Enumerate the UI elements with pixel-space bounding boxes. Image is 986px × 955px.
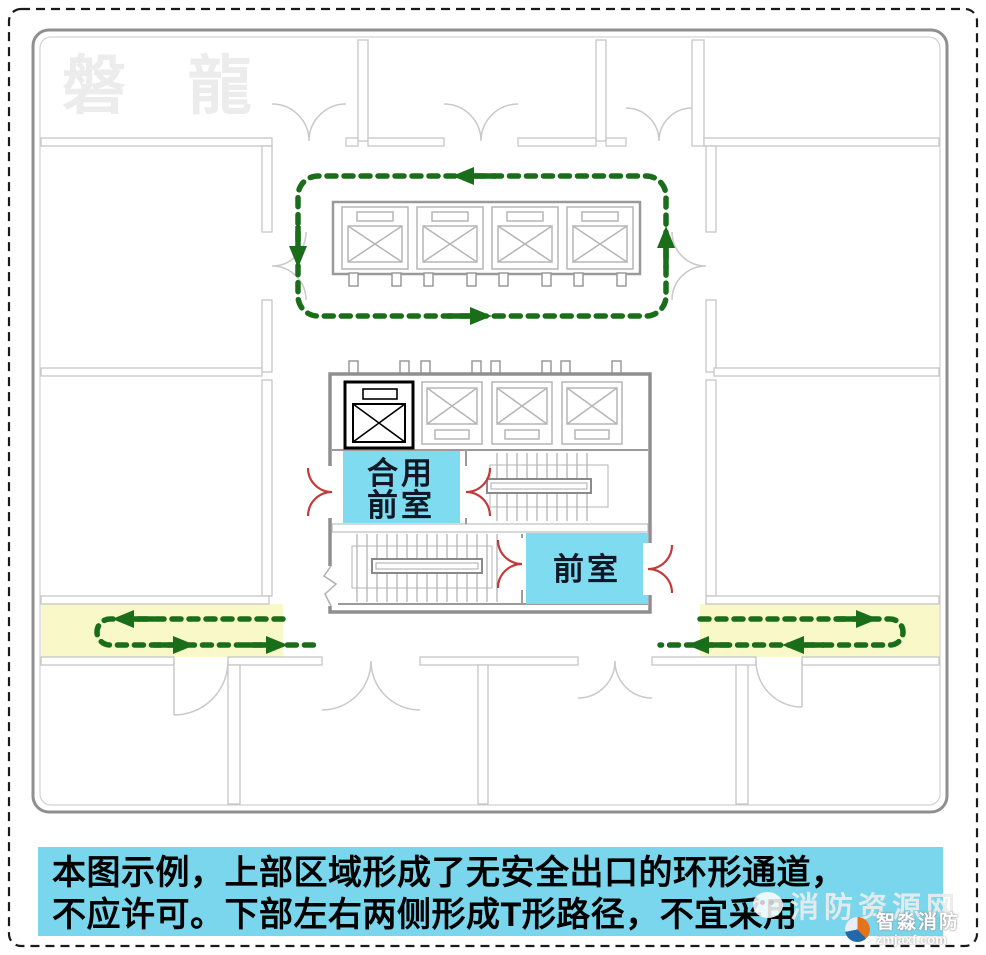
brand-logo-icon xyxy=(845,917,870,942)
brand-watermark: 智淼消防 zmjaxf.com xyxy=(845,913,960,947)
brand-watermark-name: 智淼消防 xyxy=(876,913,960,933)
elevator-shaft-icon xyxy=(492,207,558,269)
wechat-icon xyxy=(753,892,783,918)
screenshot-root: 磐 龍 xyxy=(0,0,986,955)
elevator-shaft-icon xyxy=(562,382,622,444)
shared-lobby-label-line2: 前室 xyxy=(367,488,435,523)
firefighter-elevator-shaft xyxy=(345,382,413,448)
upper-elevator-bank xyxy=(333,202,640,286)
shared-lobby-label-line1: 合用 xyxy=(367,456,435,491)
corner-brand-watermark: 磐 龍 xyxy=(62,50,274,122)
service-core: 合用 前室 前室 xyxy=(308,361,672,612)
lower-stair xyxy=(352,534,522,604)
elevator-shaft-icon xyxy=(417,207,483,269)
elevator-shaft-icon xyxy=(342,207,408,269)
elevator-shaft-icon xyxy=(492,382,552,444)
brand-watermark-url: zmjaxf.com xyxy=(876,933,960,947)
elevator-shaft-icon xyxy=(422,382,482,444)
lobby-label: 前室 xyxy=(553,552,621,587)
core-mid-wall xyxy=(332,524,648,532)
left-corridor-highlight xyxy=(41,604,283,657)
elevator-shaft-icon xyxy=(567,207,633,269)
floor-plan-canvas: 磐 龍 xyxy=(0,0,986,955)
